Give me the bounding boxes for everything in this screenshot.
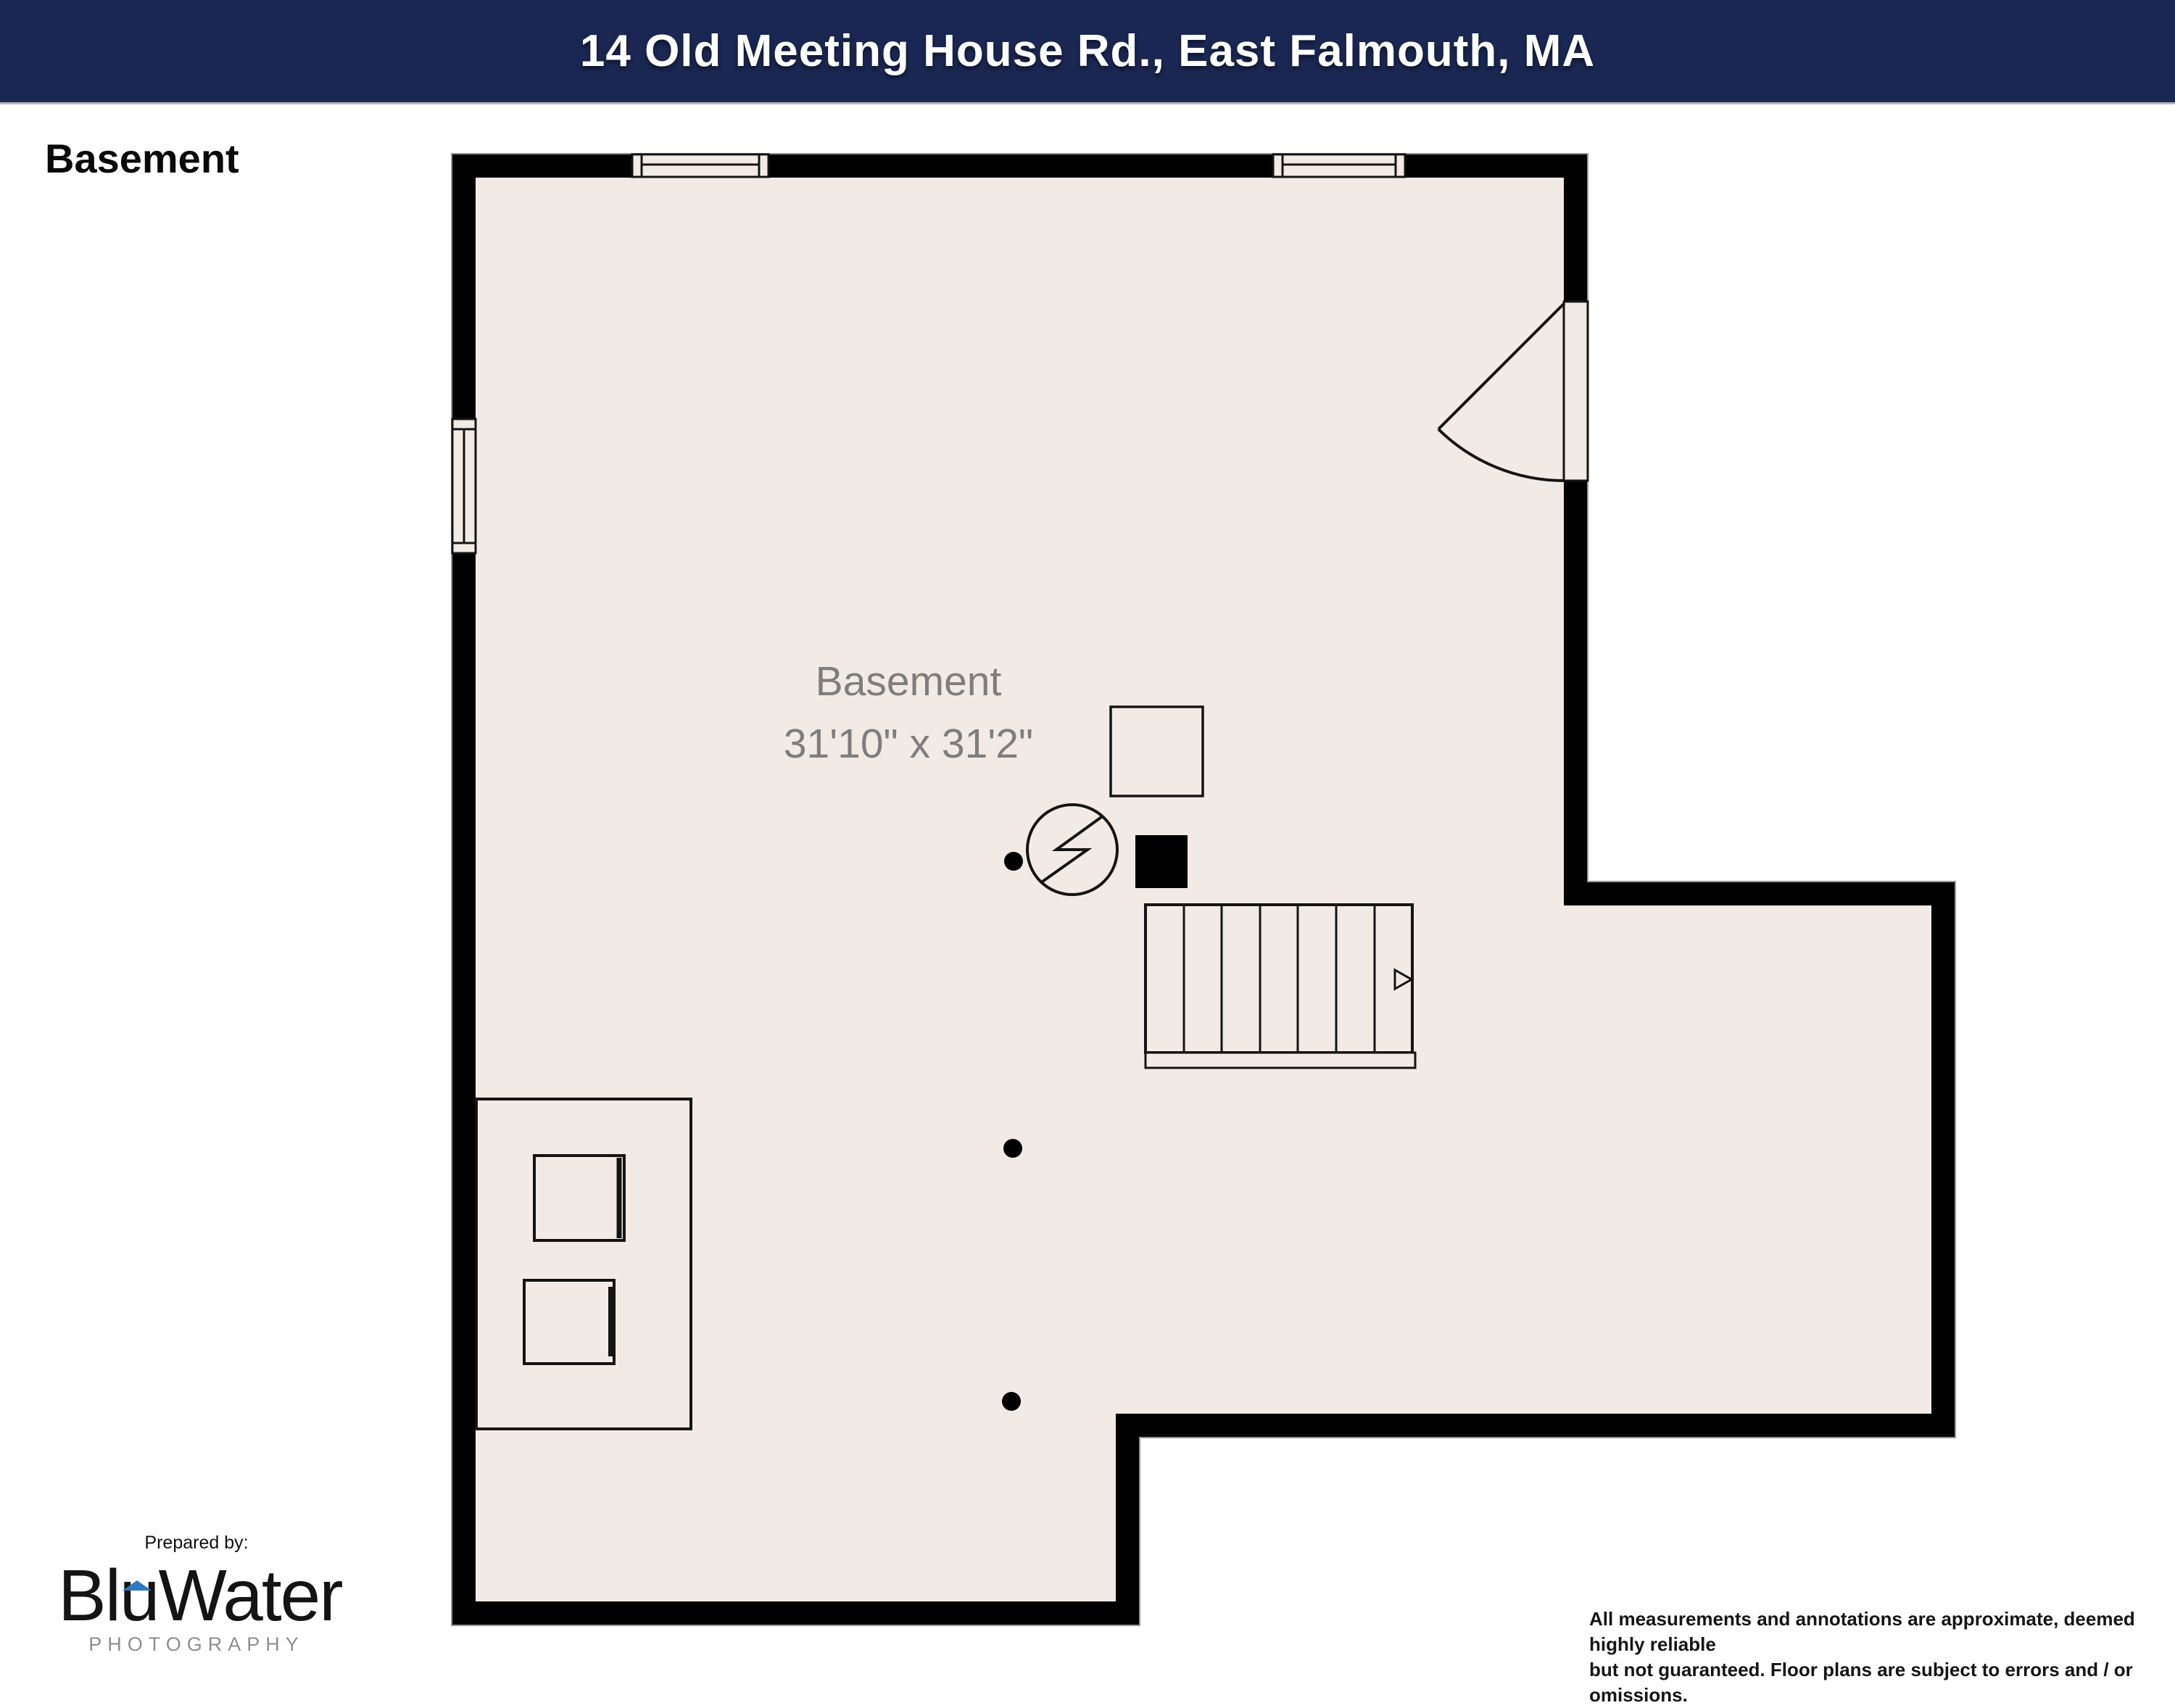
logo-part-blu: Blu [58, 1555, 159, 1636]
disclaimer-line-2: but not guaranteed. Floor plans are subj… [1589, 1657, 2175, 1708]
branding-block: Prepared by: BluWater PHOTOGRAPHY [58, 1533, 335, 1656]
window-top-right-icon [1273, 154, 1405, 177]
prepared-by-label: Prepared by: [58, 1533, 335, 1554]
logo-part-water: Water [159, 1555, 342, 1636]
disclaimer-line-1: All measurements and annotations are app… [1589, 1607, 2175, 1657]
floor-plan [0, 0, 2175, 1680]
room-dimensions: 31'10" x 31'2" [691, 721, 1126, 767]
page: 14 Old Meeting House Rd., East Falmouth,… [0, 0, 2175, 1680]
furnace-icon [1135, 835, 1188, 888]
logo-subtitle: PHOTOGRAPHY [58, 1633, 335, 1656]
window-left-icon [452, 419, 476, 553]
support-post-icon [1004, 852, 1023, 871]
disclaimer-text: All measurements and annotations are app… [1589, 1607, 2175, 1708]
support-post-icon [1002, 1392, 1021, 1411]
staircase-icon [1145, 905, 1415, 1068]
water-heater-icon [1027, 805, 1117, 895]
logo-wordmark: BluWater [58, 1559, 335, 1632]
utility-unit-lower [524, 1280, 616, 1364]
utility-enclosure [476, 1099, 691, 1429]
support-post-icon [1003, 1139, 1022, 1158]
floor-label: Basement [45, 135, 239, 182]
window-top-left-icon [632, 154, 768, 177]
room-label: Basement 31'10" x 31'2" [691, 658, 1126, 767]
room-name: Basement [691, 658, 1126, 705]
logo-roof-triangle-icon [123, 1580, 152, 1591]
utility-unit-upper [534, 1156, 624, 1240]
